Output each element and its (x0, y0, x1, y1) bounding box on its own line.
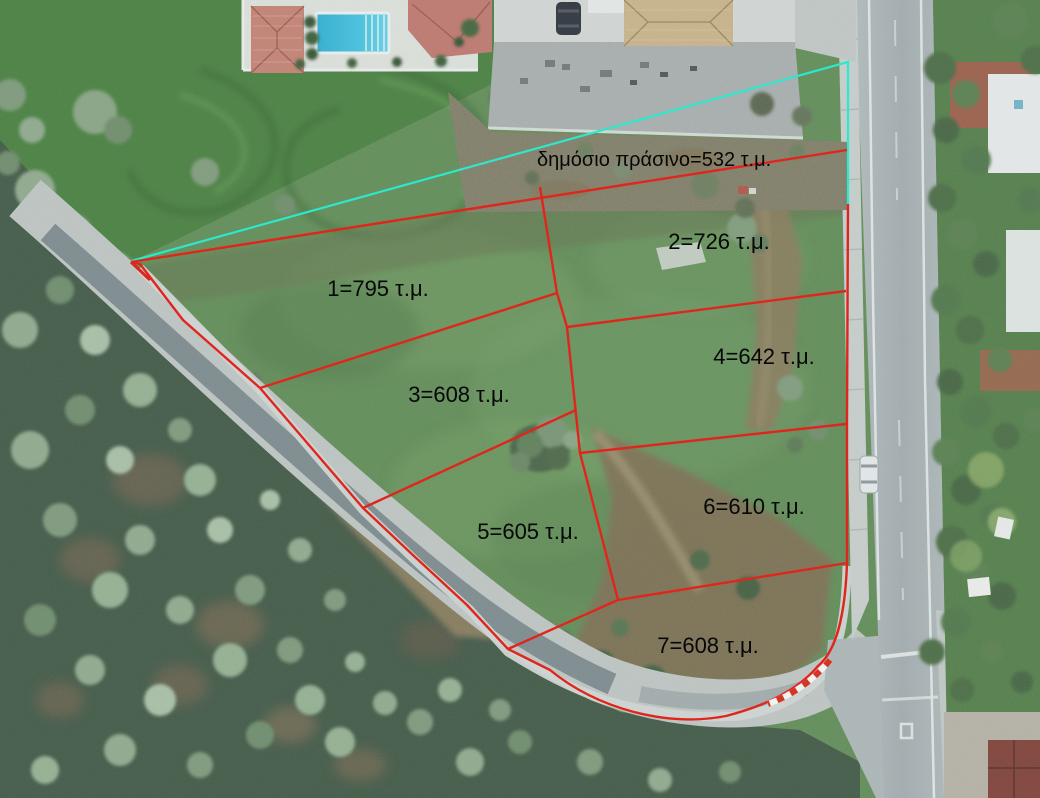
label-parcel-4: 4=642 τ.μ. (713, 344, 815, 369)
label-parcel-6: 6=610 τ.μ. (703, 494, 805, 519)
label-public-green: δημόσιο πράσινο=532 τ.μ. (537, 149, 771, 171)
label-parcel-3: 3=608 τ.μ. (408, 382, 510, 407)
aerial-photo-canvas: δημόσιο πράσινο=532 τ.μ. 1=795 τ.μ. 2=72… (0, 0, 1040, 798)
aerial-photo: δημόσιο πράσινο=532 τ.μ. 1=795 τ.μ. 2=72… (0, 0, 1040, 798)
label-parcel-5: 5=605 τ.μ. (477, 519, 579, 544)
label-parcel-2: 2=726 τ.μ. (668, 229, 770, 254)
label-parcel-7: 7=608 τ.μ. (657, 633, 759, 658)
label-parcel-1: 1=795 τ.μ. (327, 276, 429, 301)
